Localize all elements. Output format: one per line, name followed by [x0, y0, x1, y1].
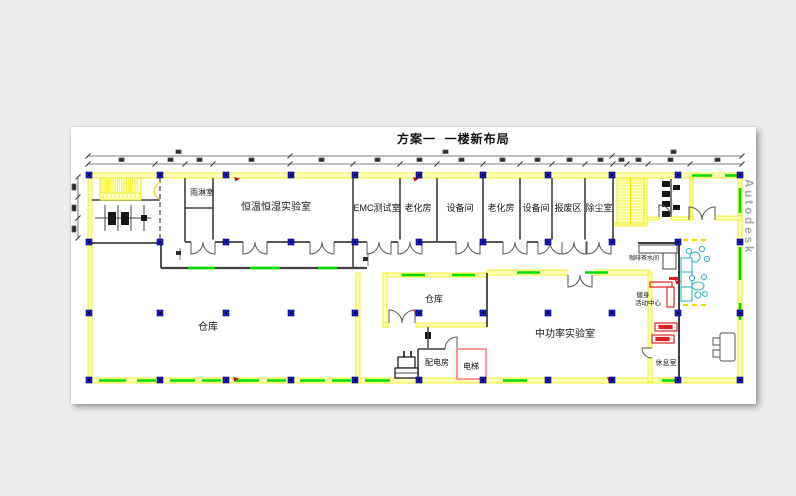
room-label-mid-power-lab: 中功率实验室	[535, 330, 595, 341]
room-label-coffee-room: 咖啡茶水间	[629, 256, 659, 262]
room-label-fitness-2: 活动中心	[635, 301, 661, 308]
room-label-warehouse-main: 仓库	[198, 323, 218, 334]
doors	[191, 205, 715, 358]
room-label-dust-removal: 除尘室	[585, 204, 612, 213]
room-label-lounge: 休息室	[656, 360, 677, 367]
room-label-fitness-1: 健身	[637, 293, 650, 300]
room-label-power-room: 配电房	[425, 359, 449, 367]
desktop-background: 方案一 一楼新布局 雨淋室 恒温恒湿实验室 EMC测试室 老化房 设备间 老化房…	[0, 0, 796, 496]
transformer-fixture	[395, 351, 418, 378]
floor-plan-sheet: 方案一 一楼新布局 雨淋室 恒温恒湿实验室 EMC测试室 老化房 设备间 老化房…	[71, 127, 756, 404]
room-label-scrap-area: 报废区	[554, 204, 581, 213]
room-label-aging-1: 老化房	[404, 204, 431, 213]
room-label-climate-lab: 恒温恒湿实验室	[241, 203, 311, 214]
room-label-elevator: 电梯	[463, 363, 479, 371]
autodesk-watermark: Autodesk	[742, 179, 754, 379]
fitness-equipment	[650, 277, 678, 343]
room-label-aging-2: 老化房	[487, 204, 514, 213]
floor-plan-geometry	[71, 127, 756, 404]
drawing-title: 方案一 一楼新布局	[397, 130, 510, 147]
room-label-warehouse-small: 仓库	[425, 295, 443, 304]
lounge-tables	[681, 246, 710, 301]
staircases	[100, 178, 644, 224]
lounge-desk	[713, 333, 735, 361]
room-label-equipment-1: 设备间	[446, 204, 473, 213]
stair-door-arc	[154, 182, 160, 200]
room-label-emc-test: EMC测试室	[354, 204, 401, 213]
room-label-rain-room: 雨淋室	[190, 189, 214, 197]
room-label-equipment-2: 设备间	[522, 204, 549, 213]
